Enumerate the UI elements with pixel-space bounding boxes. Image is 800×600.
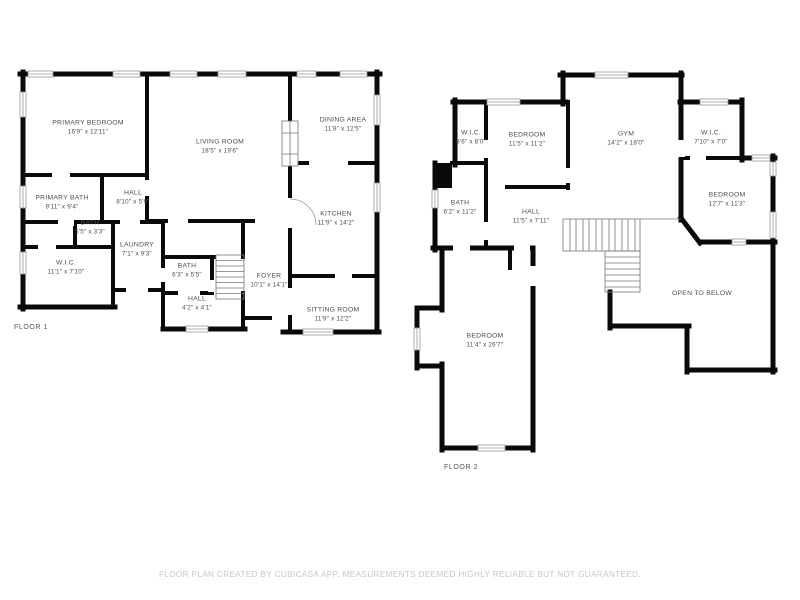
floor-1-label: FLOOR 1 bbox=[14, 324, 48, 331]
floor-2-windows bbox=[414, 72, 776, 451]
floor-1-stairs bbox=[216, 255, 244, 299]
floor-2-label: FLOOR 2 bbox=[444, 464, 478, 471]
floor-2-door-openings bbox=[453, 140, 706, 286]
chimney-block bbox=[433, 163, 452, 188]
fireplace bbox=[282, 121, 298, 166]
disclaimer-text: FLOOR PLAN CREATED BY CUBICASA APP. MEAS… bbox=[0, 570, 800, 579]
floor-2-walls bbox=[414, 72, 776, 451]
floor-plan-drawing bbox=[0, 0, 800, 600]
floor-plan-page: PRIMARY BEDROOM16'9" x 12'11"LIVING ROOM… bbox=[0, 0, 800, 600]
floor-2-stairs bbox=[563, 219, 681, 292]
floor-1-walls bbox=[20, 71, 380, 335]
floor-1-door-openings bbox=[38, 170, 352, 315]
